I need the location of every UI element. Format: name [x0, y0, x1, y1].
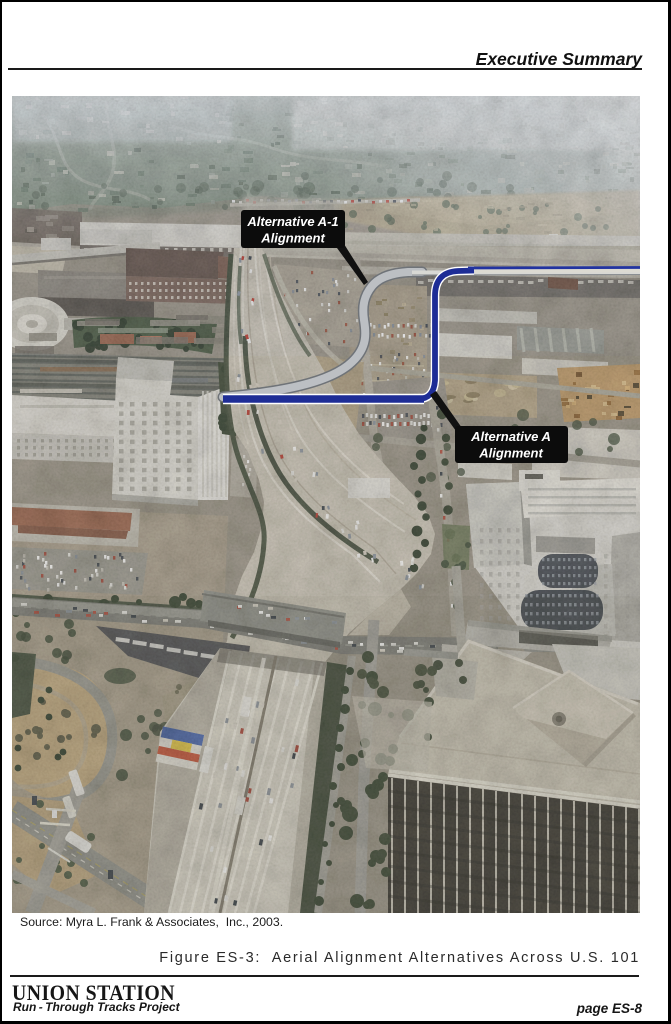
svg-text:Alternative A-1: Alternative A-1: [246, 214, 338, 229]
svg-text:Alignment: Alignment: [260, 231, 325, 246]
svg-text:Alignment: Alignment: [478, 446, 543, 461]
svg-text:Alternative A: Alternative A: [470, 429, 551, 444]
